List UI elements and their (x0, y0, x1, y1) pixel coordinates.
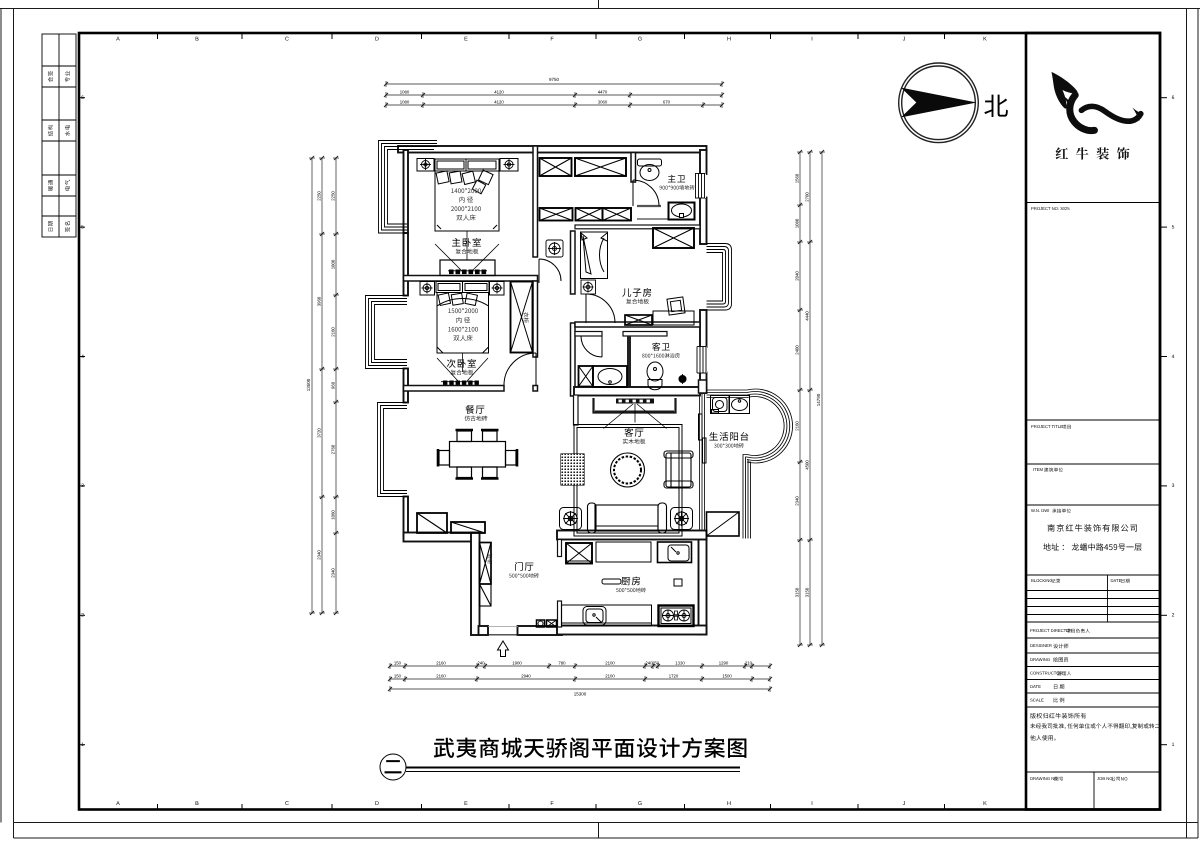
svg-text:DATE: DATE (1030, 684, 1041, 689)
svg-text:G: G (638, 37, 642, 43)
svg-text:2040: 2040 (795, 271, 800, 281)
svg-text:2940: 2940 (521, 674, 531, 679)
svg-text:3720: 3720 (317, 428, 322, 438)
svg-text:2760: 2760 (331, 444, 336, 454)
svg-text:J: J (903, 801, 906, 807)
svg-text:H: H (727, 801, 731, 807)
svg-text:1080: 1080 (795, 218, 800, 228)
svg-text:240: 240 (477, 661, 485, 666)
svg-text:W.N. DWI: W.N. DWI (1031, 508, 1049, 513)
svg-text:3150: 3150 (795, 587, 800, 597)
svg-text:DRAWING NO: DRAWING NO (1030, 776, 1058, 781)
svg-text:2340: 2340 (331, 568, 336, 578)
svg-text:2700: 2700 (805, 192, 810, 202)
svg-text:K: K (983, 37, 987, 43)
svg-text:1800: 1800 (331, 259, 336, 269)
svg-text:2100: 2100 (605, 674, 615, 679)
svg-text:DESIGNER: DESIGNER (1030, 643, 1052, 648)
svg-text:JOB NO: JOB NO (1097, 776, 1113, 781)
svg-text:1060: 1060 (331, 510, 336, 520)
svg-text:15300: 15300 (574, 692, 587, 697)
svg-text:4500: 4500 (805, 460, 810, 470)
svg-text:6: 6 (81, 95, 84, 101)
svg-text:A: A (116, 37, 120, 43)
svg-text:1080: 1080 (400, 90, 410, 95)
svg-text:J: J (903, 37, 906, 43)
svg-text:780: 780 (558, 661, 566, 666)
svg-text:3: 3 (81, 483, 84, 489)
svg-text:9750: 9750 (549, 77, 560, 82)
svg-text:G: G (638, 801, 642, 807)
svg-text:4: 4 (1172, 354, 1175, 360)
svg-text:210: 210 (745, 661, 753, 666)
svg-text:2160: 2160 (795, 421, 800, 431)
svg-text:3960: 3960 (317, 296, 322, 306)
svg-text:2160: 2160 (436, 674, 446, 679)
svg-text:1500: 1500 (722, 674, 732, 679)
svg-text:4120: 4120 (494, 90, 504, 95)
svg-text:1720: 1720 (669, 674, 679, 679)
svg-text:1560: 1560 (795, 173, 800, 183)
svg-text:4120: 4120 (494, 100, 504, 105)
svg-text:14790: 14790 (816, 393, 821, 406)
svg-text:1290: 1290 (719, 661, 729, 666)
svg-text:C: C (285, 801, 289, 807)
svg-text:BLOCKING: BLOCKING (1031, 578, 1053, 583)
svg-text:1080: 1080 (400, 100, 410, 105)
svg-text:ITEM: ITEM (1033, 467, 1044, 472)
svg-text:3060: 3060 (598, 100, 608, 105)
svg-text:C: C (285, 37, 289, 43)
svg-text:2: 2 (81, 613, 84, 619)
svg-text:4440: 4440 (805, 311, 810, 321)
svg-text:D: D (375, 37, 379, 43)
svg-text:6: 6 (1172, 95, 1175, 101)
svg-text:5: 5 (1172, 224, 1175, 230)
svg-text:1900: 1900 (512, 661, 522, 666)
svg-text:B: B (195, 37, 199, 43)
svg-text:PROJECT NO: 3025: PROJECT NO: 3025 (1031, 206, 1070, 211)
svg-text:4470: 4470 (598, 90, 608, 95)
svg-text:H: H (727, 37, 731, 43)
svg-text:5: 5 (81, 224, 84, 230)
svg-text:D: D (375, 801, 379, 807)
svg-text:E: E (464, 37, 468, 43)
svg-text:3150: 3150 (805, 587, 810, 597)
svg-text:670: 670 (663, 100, 671, 105)
svg-text:150: 150 (394, 661, 402, 666)
svg-text:SCALE: SCALE (1030, 698, 1044, 703)
svg-text:DATE: DATE (1111, 578, 1122, 583)
svg-text:E: E (464, 801, 468, 807)
svg-text:2160: 2160 (436, 661, 446, 666)
svg-text:1: 1 (81, 742, 84, 748)
svg-text:B: B (195, 801, 199, 807)
svg-text:150: 150 (652, 661, 660, 666)
svg-text:2250: 2250 (317, 191, 322, 201)
svg-text:PROJECT DIRECTOR: PROJECT DIRECTOR (1030, 628, 1072, 633)
svg-text:2400: 2400 (795, 345, 800, 355)
svg-text:2340: 2340 (317, 550, 322, 560)
svg-text:2100: 2100 (605, 661, 615, 666)
svg-text:13500: 13500 (306, 378, 311, 391)
svg-text:DRAWING: DRAWING (1030, 657, 1050, 662)
svg-text:A: A (116, 801, 120, 807)
svg-text:960: 960 (331, 381, 336, 389)
svg-text:K: K (983, 801, 987, 807)
svg-text:150: 150 (394, 674, 402, 679)
svg-text:4: 4 (81, 354, 84, 360)
svg-text:2250: 2250 (331, 191, 336, 201)
svg-text:2: 2 (1172, 613, 1175, 619)
svg-text:2340: 2340 (795, 496, 800, 506)
svg-text:PROJECT TITLE: PROJECT TITLE (1031, 424, 1063, 429)
svg-text:1330: 1330 (675, 661, 685, 666)
svg-text:3: 3 (1172, 483, 1175, 489)
svg-text:2160: 2160 (331, 327, 336, 337)
svg-text:1: 1 (1172, 742, 1175, 748)
